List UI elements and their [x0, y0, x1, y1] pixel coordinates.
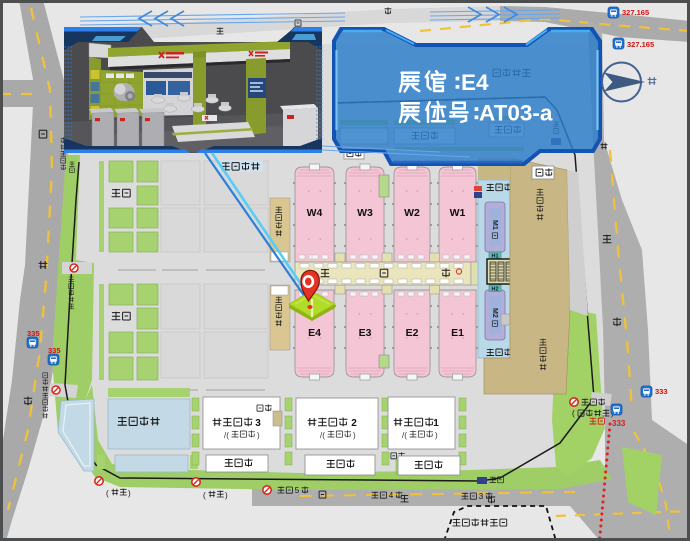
svg-text:W2: W2: [404, 207, 420, 219]
svg-text:W1: W1: [450, 207, 466, 219]
svg-text:333: 333: [612, 419, 626, 428]
svg-text:): ): [353, 431, 356, 440]
svg-text:333: 333: [655, 387, 668, 396]
svg-text:/(: /(: [224, 431, 229, 440]
svg-text:AT03-a: AT03-a: [479, 101, 553, 126]
svg-text:M1: M1: [491, 220, 498, 230]
svg-text:335: 335: [27, 329, 40, 338]
svg-text:E2: E2: [406, 327, 419, 339]
svg-text:327.165: 327.165: [622, 8, 649, 17]
svg-text:5: 5: [295, 486, 300, 495]
svg-text:): ): [225, 491, 228, 500]
svg-text:(: (: [203, 491, 206, 500]
svg-text:): ): [128, 489, 131, 498]
svg-text:): ): [257, 431, 260, 440]
svg-text:4: 4: [389, 491, 394, 500]
svg-text:2: 2: [351, 418, 357, 429]
svg-text:3: 3: [479, 492, 484, 501]
svg-text:E3: E3: [359, 327, 372, 339]
svg-text:): ): [435, 431, 438, 440]
svg-text:/(: /(: [320, 431, 325, 440]
svg-text:W4: W4: [307, 207, 323, 219]
svg-text:/(: /(: [402, 431, 407, 440]
svg-text:H2: H2: [491, 287, 498, 293]
svg-text:M2: M2: [491, 308, 498, 318]
svg-text:3: 3: [255, 418, 261, 429]
svg-text:(: (: [106, 489, 109, 498]
svg-text:(: (: [572, 409, 575, 418]
svg-text:E1: E1: [451, 327, 464, 339]
svg-text:E4: E4: [461, 70, 489, 95]
svg-text:335: 335: [48, 346, 61, 355]
svg-text:1: 1: [433, 418, 439, 429]
svg-text:W3: W3: [357, 207, 373, 219]
svg-text:E4: E4: [308, 327, 321, 339]
svg-text:327.165: 327.165: [627, 40, 654, 49]
